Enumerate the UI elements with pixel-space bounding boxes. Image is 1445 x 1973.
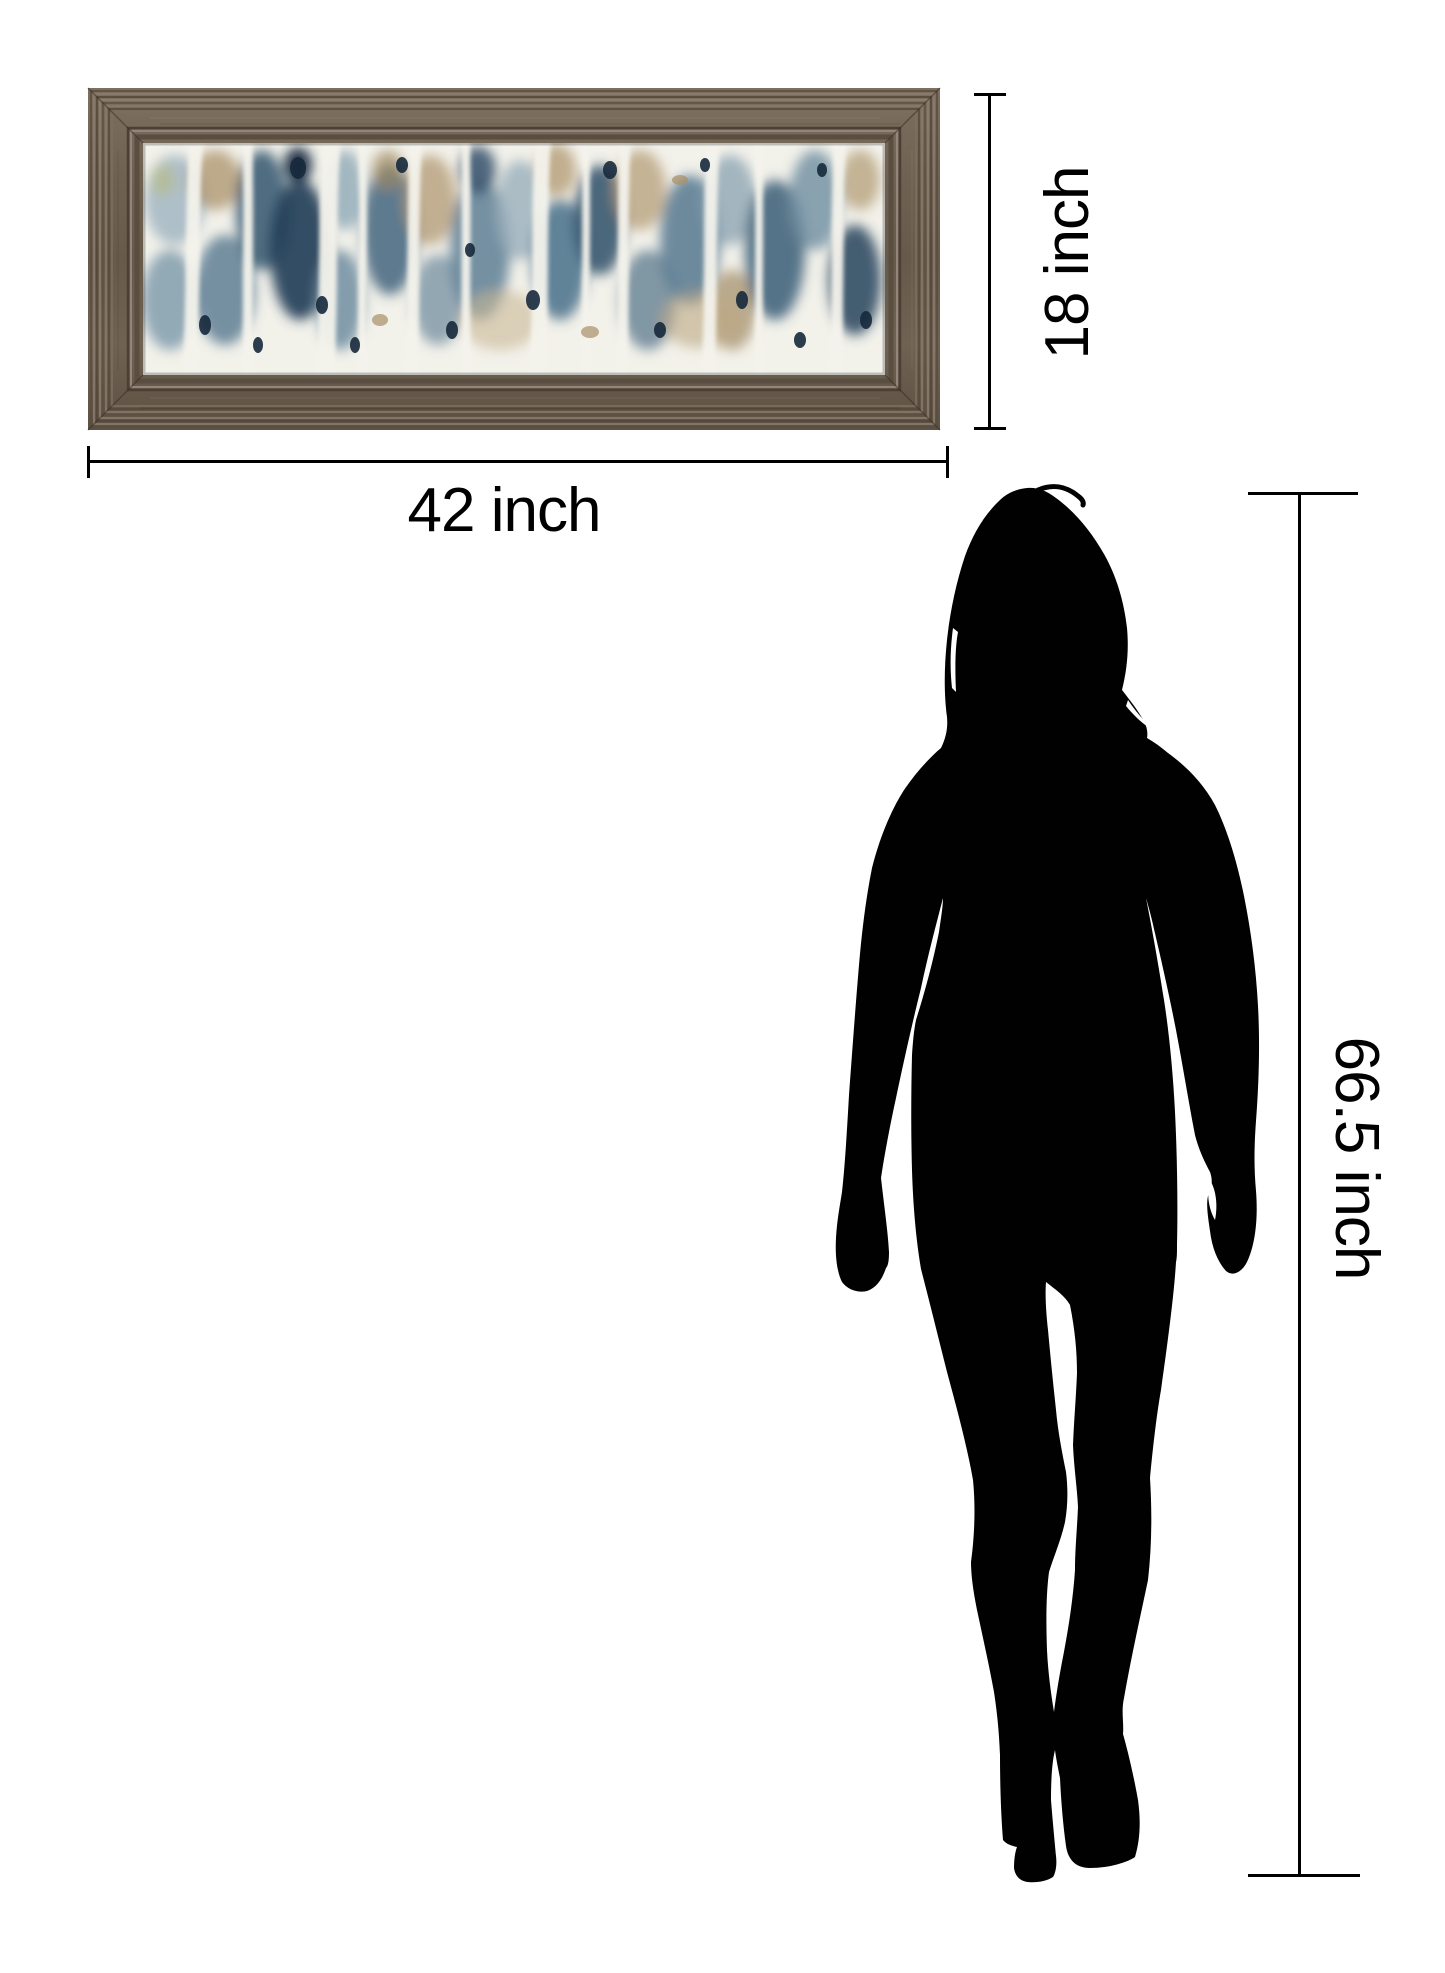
birch-watercolor-art — [142, 138, 885, 380]
silhouette-body — [836, 488, 1259, 1882]
art-height-dimension-tick-top — [974, 93, 1006, 96]
width-dimension-line — [88, 460, 948, 463]
art-height-dimension-line — [988, 93, 991, 430]
width-dimension-tick-right — [946, 446, 949, 478]
person-height-dimension-tick-bottom — [1248, 1874, 1360, 1877]
width-dimension-label: 42 inch — [408, 480, 601, 542]
framed-artwork — [88, 88, 940, 430]
woman-silhouette — [836, 487, 1259, 1883]
width-dimension-tick-left — [87, 446, 90, 478]
person-height-dimension-label: 66.5 inch — [1325, 1037, 1387, 1280]
art-height-dimension-tick-bottom — [974, 427, 1006, 430]
scene-graphics — [0, 0, 1445, 1973]
person-height-dimension-line — [1298, 492, 1301, 1877]
art-height-dimension-label: 18 inch — [1037, 167, 1099, 360]
person-height-dimension-tick-top — [1248, 492, 1358, 495]
size-comparison-diagram: 42 inch 18 inch 66.5 inch — [0, 0, 1445, 1973]
